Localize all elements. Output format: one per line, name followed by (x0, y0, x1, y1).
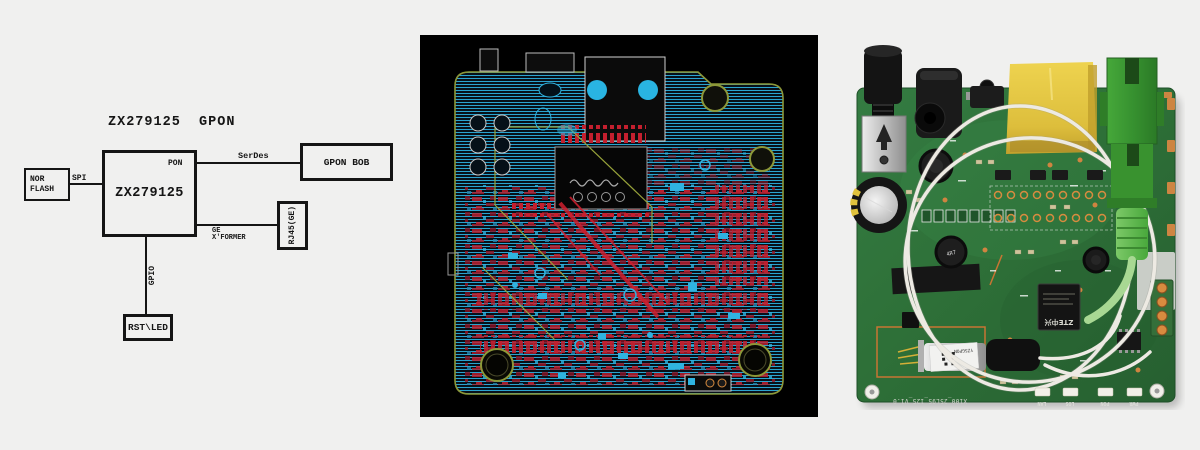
metal-jack (862, 116, 906, 172)
board-code: X100_25L95_125_V1.0 (893, 397, 967, 404)
hole (750, 147, 774, 171)
gpio-bus-label: GPIO (148, 266, 157, 285)
led-label-pon: PON (1100, 400, 1109, 406)
rj45-label: RJ45(GE) (288, 206, 297, 244)
connector-footprint (526, 53, 574, 72)
rj45-block: RJ45(GE) (277, 201, 308, 250)
figure-collage: ZX279125 GPON ZX279125 PON NOR FLASH GPO… (0, 0, 1200, 450)
right-edge-connector (1151, 280, 1173, 336)
soc-block: ZX279125 (102, 150, 197, 237)
electrolytic-capacitor (851, 177, 907, 233)
rst-led-label: RST\LED (128, 322, 168, 333)
inductor-4r7: 4R7 (936, 237, 966, 267)
nor-flash-label: NOR FLASH (30, 175, 54, 195)
gpon-bob-block: GPON BOB (300, 143, 393, 181)
hole (702, 85, 728, 111)
pcb-layout-panel (420, 35, 818, 417)
led-label-los: LOS (1065, 400, 1074, 406)
pcb-photo-graphic: 4R7 (850, 40, 1185, 410)
bosa-boot (986, 339, 1040, 371)
pon-port-label: PON (168, 159, 182, 168)
soc-chip: ZTE中兴 (1038, 284, 1080, 330)
transformer-footprint (555, 125, 647, 209)
inductor (1084, 248, 1108, 272)
connector-footprint (480, 49, 498, 71)
rst-led-block: RST\LED (123, 314, 173, 341)
spi-line (68, 183, 102, 185)
dc-jack (915, 68, 962, 138)
led-label-lan: LAN (1037, 400, 1046, 406)
reset-button (966, 80, 1004, 108)
gpon-bob-label: GPON BOB (324, 157, 370, 168)
ge-line (196, 224, 277, 226)
nor-flash-block: NOR FLASH (24, 168, 70, 201)
gpio-line (145, 236, 147, 314)
serdes-line (196, 162, 300, 164)
sc-boot (1116, 208, 1148, 260)
spi-bus-label: SPI (72, 174, 86, 183)
led-label-pwr: PWR (1128, 400, 1138, 406)
serdes-bus-label: SerDes (238, 151, 269, 161)
pcb-photo-panel: 4R7 (850, 40, 1185, 410)
diagram-title: ZX279125 GPON (108, 115, 235, 130)
soc-block-label: ZX279125 (115, 186, 184, 201)
pad-circle (638, 80, 658, 100)
xformer-bus-label: X'FORMER (212, 234, 246, 242)
pad-circle (587, 80, 607, 100)
soc-chip-logo: ZTE中兴 (1045, 318, 1074, 327)
pcb-layout-graphic (420, 35, 818, 417)
